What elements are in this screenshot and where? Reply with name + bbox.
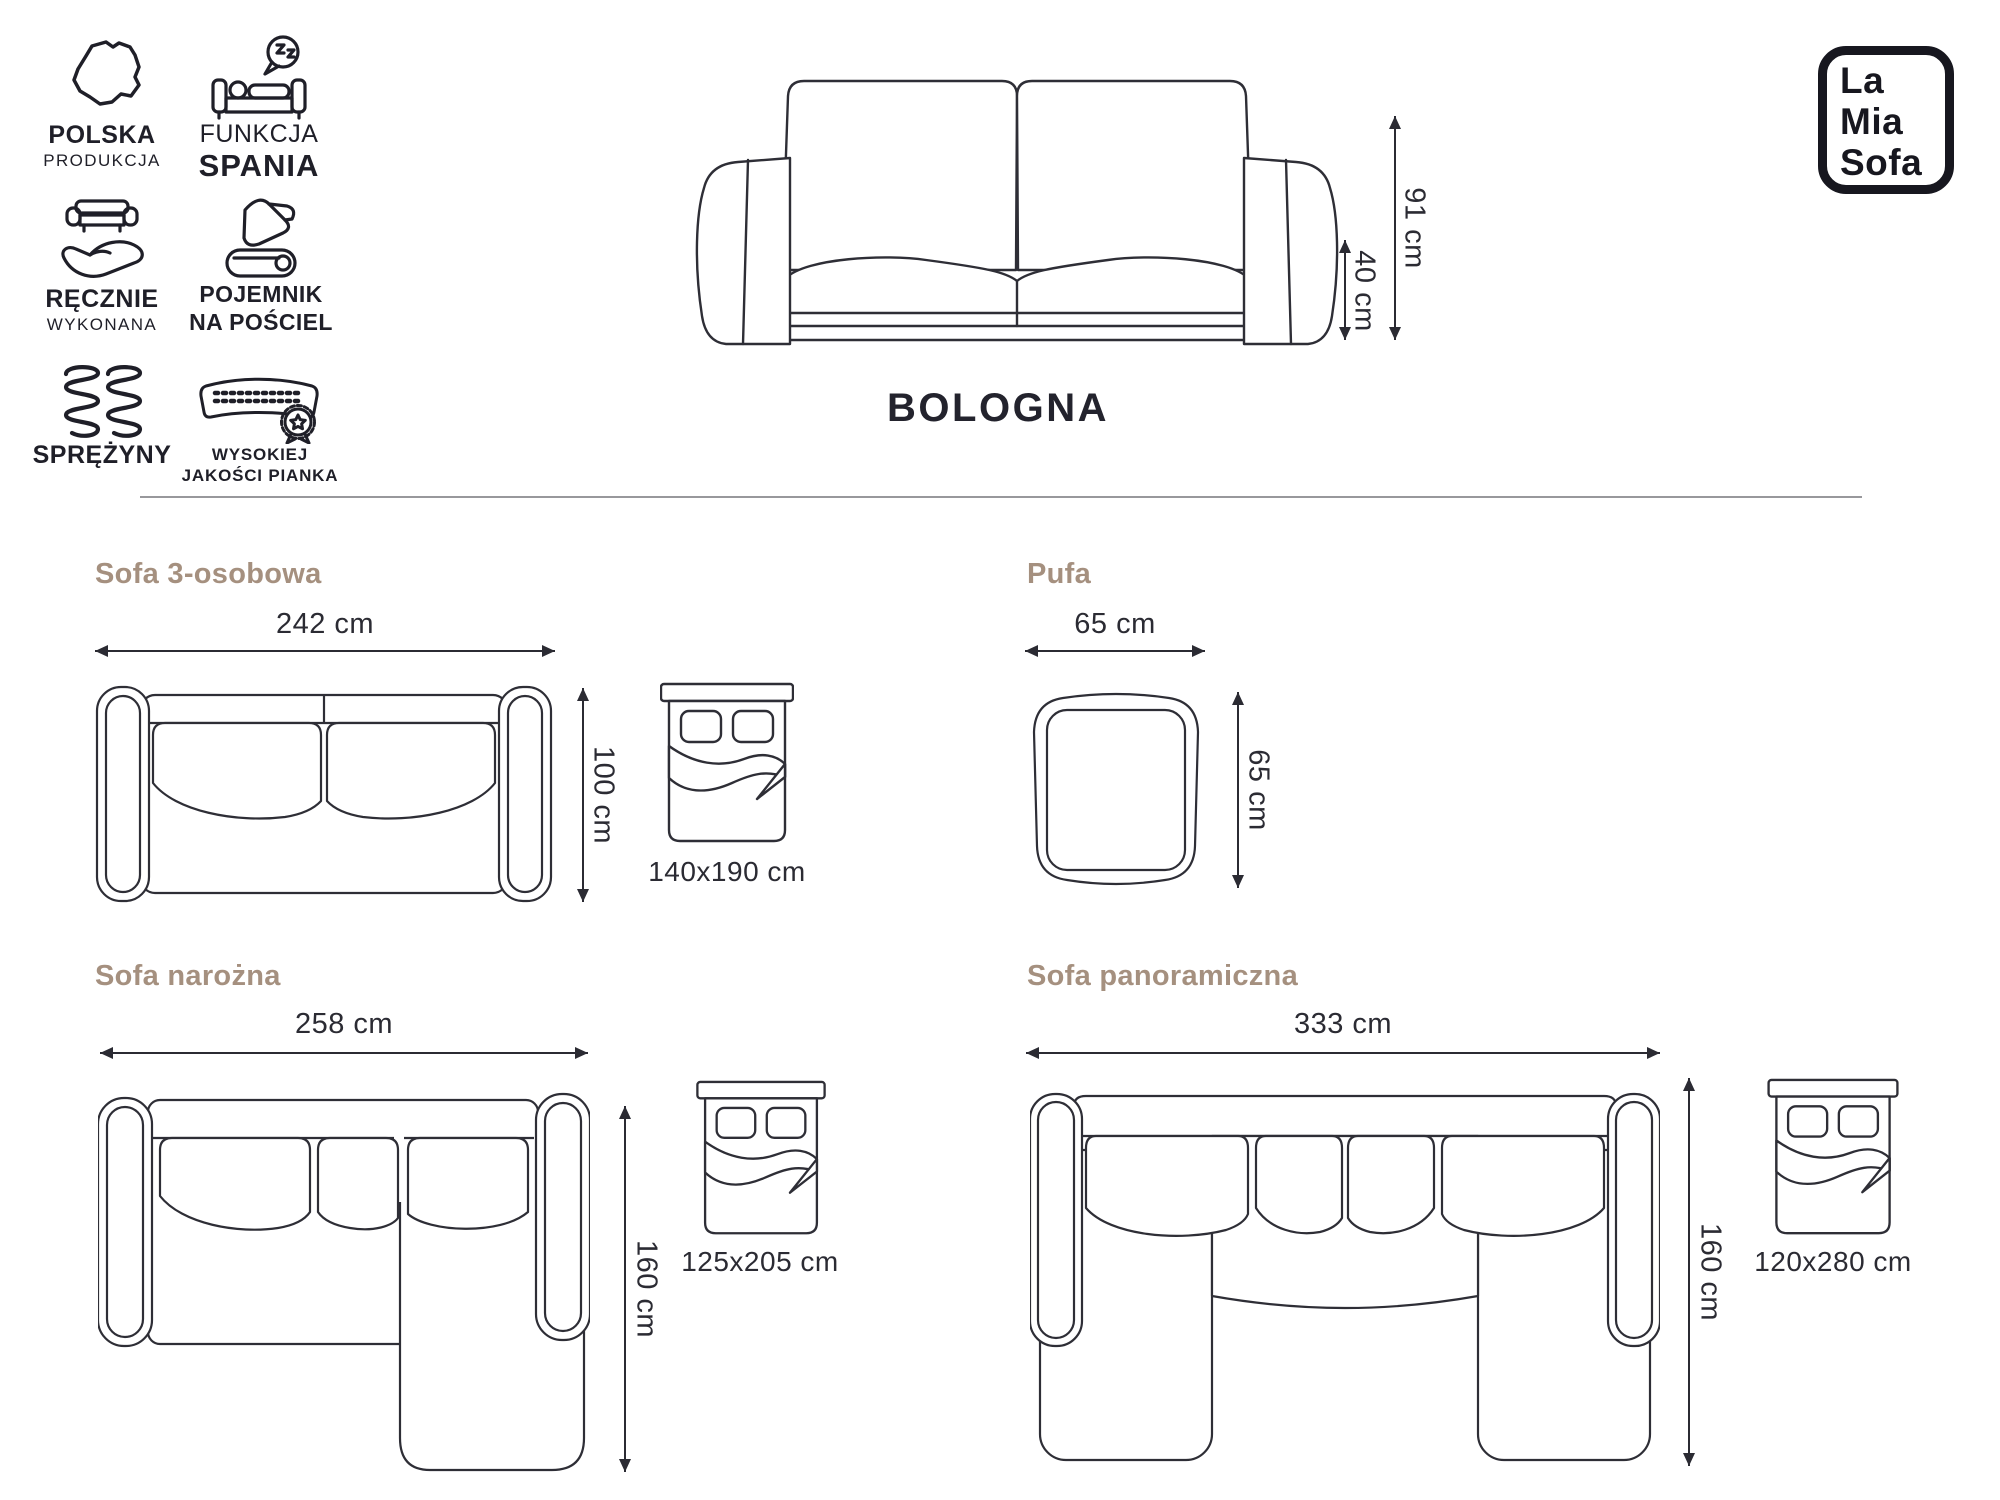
badge-sublabel: WYKONANA [47,314,157,335]
product-spec-sheet: POLSKA PRODUKCJA FUNKCJA SPANIA [0,0,2000,1500]
dim-total-height: 91 cm [1398,187,1431,268]
sofa-panoramiczna-top-view-drawing [1030,1090,1660,1468]
badge-sublabel: PRODUKCJA [43,150,160,171]
dim-arrow-sofa3-width [95,650,555,652]
divider [140,496,1862,498]
bed-size-icon [696,1080,826,1240]
bed-size-icon [660,682,794,848]
badge-sublabel: SPANIA [199,149,320,183]
sleep-function-icon [211,34,307,120]
dim-panoramiczna-bed: 120x280 cm [1726,1246,1940,1278]
logo-line-1: La [1840,60,1945,101]
page-title: BOLOGNA [800,386,1196,431]
badge-sprezyny: SPRĘŻYNY [28,362,176,470]
section-title-sofa-narozna: Sofa narożna [95,960,281,993]
badge-funkcja-spania: FUNKCJA SPANIA [174,34,344,183]
springs-icon [54,362,150,440]
dim-arrow-pufa-width [1025,650,1205,652]
foam-icon [197,372,323,444]
pufa-top-view-drawing [1025,688,1207,892]
badge-polska-produkcja: POLSKA PRODUKCJA [28,36,176,171]
badge-recznie-wykonana: RĘCZNIE WYKONANA [28,196,176,335]
dim-arrow-narozna-width [100,1052,588,1054]
sofa-narozna-top-view-drawing [98,1092,590,1478]
badge-label: FUNKCJA [200,120,319,149]
dim-arrow-panoramiczna-depth [1688,1078,1690,1466]
badge-label: SPRĘŻYNY [33,440,172,470]
dim-narozna-width: 258 cm [100,1008,588,1041]
dim-pufa-depth: 65 cm [1242,749,1275,830]
dim-arrow-total-height [1394,116,1396,340]
dim-arrow-panoramiczna-width [1026,1052,1660,1054]
dim-arrow-sofa3-depth [582,688,584,902]
badge-sublabel: JAKOŚCI PIANKA [182,465,339,486]
dim-arrow-narozna-depth [624,1106,626,1472]
sofa-3-osobowa-top-view-drawing [95,683,553,905]
sofa-front-view-drawing [686,64,1348,352]
dim-panoramiczna-width: 333 cm [1026,1008,1660,1041]
badge-label: POJEMNIK [199,280,322,308]
bedding-container-icon [217,192,305,280]
dim-seat-height: 40 cm [1348,250,1381,331]
logo-line-2: Mia [1840,101,1945,142]
dim-arrow-pufa-depth [1237,692,1239,888]
logo-line-3: Sofa [1840,142,1945,183]
bed-size-icon [1766,1078,1900,1240]
dim-narozna-bed: 125x205 cm [640,1246,880,1278]
badge-wysokiej-jakosci-pianka: WYSOKIEJ JAKOŚCI PIANKA [160,372,360,486]
dim-arrow-seat-height [1344,240,1346,340]
dim-sofa3-width: 242 cm [95,608,555,641]
badge-label: POLSKA [48,120,155,150]
badge-sublabel: NA POŚCIEL [189,308,333,336]
section-title-sofa-3-osobowa: Sofa 3-osobowa [95,558,322,591]
badge-label: RĘCZNIE [45,284,158,314]
badge-pojemnik-na-posciel: POJEMNIK NA POŚCIEL [178,192,344,336]
dim-panoramiczna-depth: 160 cm [1694,1223,1727,1321]
section-title-sofa-panoramiczna: Sofa panoramiczna [1027,960,1298,993]
badge-label: WYSOKIEJ [212,444,308,465]
section-title-pufa: Pufa [1027,558,1091,591]
poland-map-icon [56,36,148,120]
brand-logo: La Mia Sofa [1818,46,1954,194]
handmade-icon [54,196,150,284]
dim-sofa3-bed: 140x190 cm [632,856,822,888]
dim-sofa3-depth: 100 cm [587,746,620,844]
dim-pufa-width: 65 cm [1025,608,1205,641]
